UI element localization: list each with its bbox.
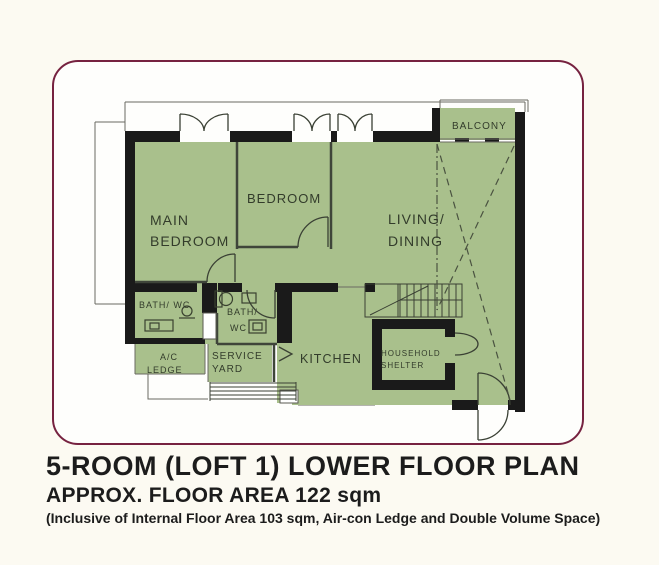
- svg-text:LEDGE: LEDGE: [147, 365, 183, 375]
- svg-text:DINING: DINING: [388, 233, 443, 249]
- service-yard-floor: [208, 344, 272, 382]
- balcony-label: BALCONY: [452, 121, 507, 132]
- window-symbols: [180, 114, 372, 131]
- bath2-label: BATH/: [227, 307, 258, 317]
- svg-text:WC: WC: [230, 323, 247, 333]
- caption-block: 5-ROOM (LOFT 1) LOWER FLOOR PLAN APPROX.…: [46, 452, 600, 527]
- entrance-door-lower: [478, 410, 508, 440]
- service-yard-label: SERVICE: [212, 351, 263, 362]
- svg-text:YARD: YARD: [212, 364, 243, 375]
- plan-note: (Inclusive of Internal Floor Area 103 sq…: [46, 510, 600, 528]
- kitchen-floor: [292, 292, 375, 405]
- plan-title: 5-ROOM (LOFT 1) LOWER FLOOR PLAN: [46, 452, 600, 482]
- main-bedroom-label: MAIN: [150, 212, 189, 228]
- shaft: [203, 313, 216, 339]
- kitchen-notch: [280, 390, 298, 403]
- household-shelter-label: HOUSEHOLD: [381, 349, 441, 358]
- plan-subtitle: APPROX. FLOOR AREA 122 sqm: [46, 483, 600, 508]
- ac-ledge-label: A/C: [160, 352, 178, 362]
- svg-text:SHELTER: SHELTER: [381, 361, 424, 370]
- bath1-label: BATH/ WC: [139, 300, 190, 310]
- living-dining-label: LIVING/: [388, 211, 445, 227]
- kitchen-label: KITCHEN: [300, 352, 362, 366]
- bedroom-label: BEDROOM: [247, 191, 321, 206]
- svg-text:BEDROOM: BEDROOM: [150, 233, 229, 249]
